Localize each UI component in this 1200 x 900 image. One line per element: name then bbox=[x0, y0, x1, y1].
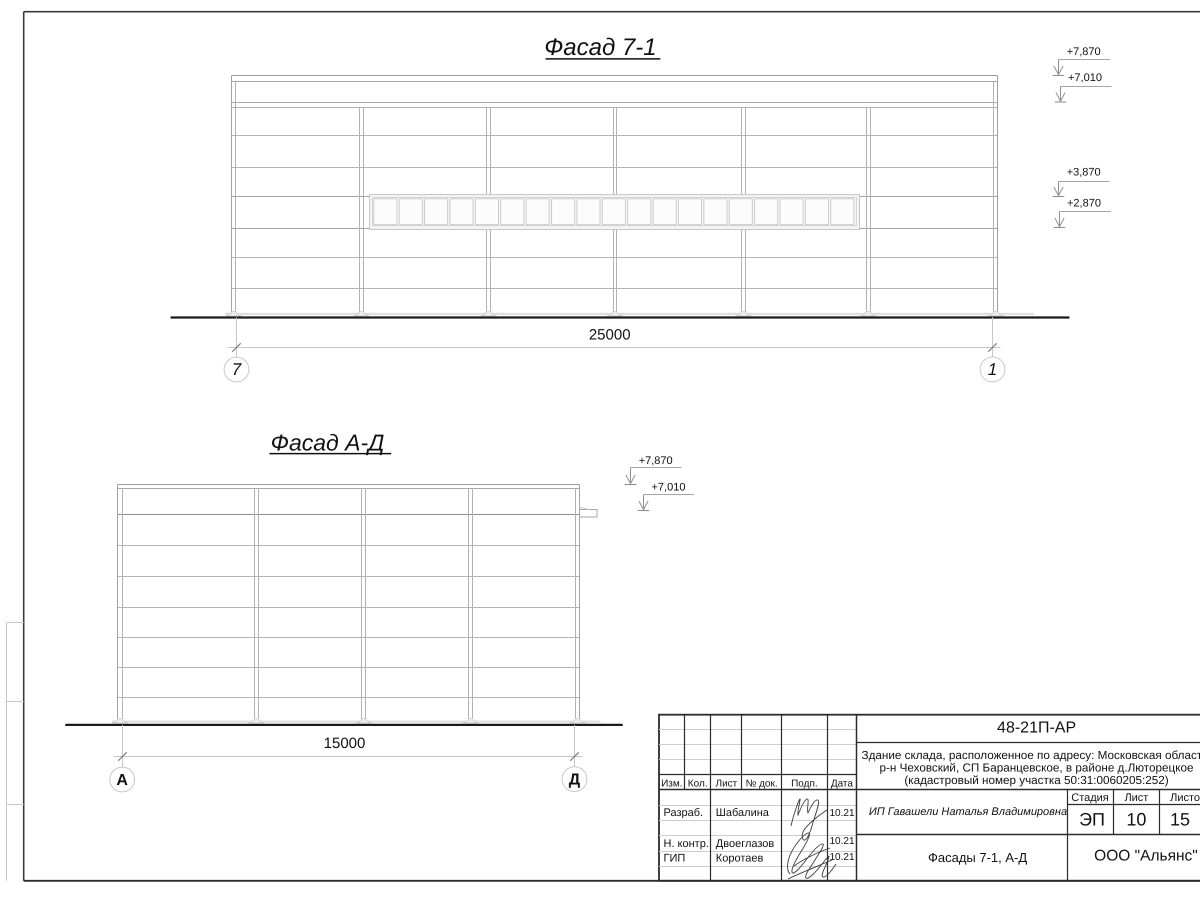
svg-text:Подп.: Подп. bbox=[791, 778, 818, 789]
svg-text:Разраб.: Разраб. bbox=[664, 807, 704, 819]
svg-text:Коротаев: Коротаев bbox=[716, 853, 764, 865]
svg-text:10.21: 10.21 bbox=[829, 808, 854, 819]
svg-text:10.21: 10.21 bbox=[829, 852, 854, 863]
svg-text:А: А bbox=[116, 772, 128, 789]
svg-text:Стадия: Стадия bbox=[1071, 792, 1109, 804]
svg-text:Здание склада, расположенное п: Здание склада, расположенное по адресу: … bbox=[862, 749, 1200, 762]
svg-text:Двоеглазов: Двоеглазов bbox=[716, 838, 775, 850]
svg-text:1: 1 bbox=[988, 360, 997, 379]
svg-text:25000: 25000 bbox=[589, 327, 631, 344]
svg-text:Листов: Листов bbox=[1170, 792, 1200, 804]
svg-text:(кадастровый номер участка 50:: (кадастровый номер участка 50:31:0060205… bbox=[904, 774, 1168, 787]
svg-text:Взам. инв. №: Взам. инв. № bbox=[0, 642, 1, 682]
svg-text:Лист: Лист bbox=[716, 778, 738, 789]
svg-text:Подп. и дата: Подп. и дата bbox=[0, 733, 1, 772]
svg-text:ЭП: ЭП bbox=[1079, 810, 1105, 830]
svg-text:15000: 15000 bbox=[324, 735, 366, 752]
svg-text:ГИП: ГИП bbox=[664, 853, 686, 865]
svg-text:р-н Чеховский, СП Баранцевское: р-н Чеховский, СП Баранцевское, в районе… bbox=[880, 762, 1194, 775]
svg-text:ООО "Альянс": ООО "Альянс" bbox=[1094, 848, 1198, 865]
svg-text:+3,870: +3,870 bbox=[1067, 166, 1101, 178]
svg-text:+7,010: +7,010 bbox=[1068, 72, 1102, 84]
svg-text:Изм.: Изм. bbox=[661, 778, 682, 789]
svg-text:+2,870: +2,870 bbox=[1067, 198, 1101, 210]
svg-text:Шабалина: Шабалина bbox=[716, 807, 770, 819]
svg-text:10.21: 10.21 bbox=[829, 836, 854, 847]
svg-text:Фасады 7-1, А-Д: Фасады 7-1, А-Д bbox=[928, 850, 1027, 865]
svg-text:№ док.: № док. bbox=[746, 778, 778, 789]
svg-text:+7,870: +7,870 bbox=[639, 455, 673, 467]
svg-text:Н. контр.: Н. контр. bbox=[664, 838, 709, 850]
svg-text:Фасад 7-1: Фасад 7-1 bbox=[544, 34, 656, 61]
svg-text:Инв. № подл.: Инв. № подл. bbox=[0, 823, 1, 864]
svg-text:15: 15 bbox=[1170, 810, 1190, 830]
svg-text:ИП Гавашели Наталья Владимиров: ИП Гавашели Наталья Владимировна bbox=[869, 806, 1067, 818]
svg-text:Лист: Лист bbox=[1124, 792, 1148, 804]
svg-text:Д: Д bbox=[569, 772, 581, 789]
svg-text:Фасад А-Д: Фасад А-Д bbox=[271, 430, 385, 456]
svg-text:10: 10 bbox=[1126, 810, 1146, 830]
svg-text:+7,010: +7,010 bbox=[652, 481, 686, 493]
svg-text:+7,870: +7,870 bbox=[1067, 46, 1101, 58]
svg-text:Дата: Дата bbox=[831, 778, 854, 789]
svg-text:Кол.: Кол. bbox=[688, 778, 708, 789]
svg-text:48-21П-АР: 48-21П-АР bbox=[997, 720, 1076, 737]
svg-text:7: 7 bbox=[232, 360, 242, 379]
